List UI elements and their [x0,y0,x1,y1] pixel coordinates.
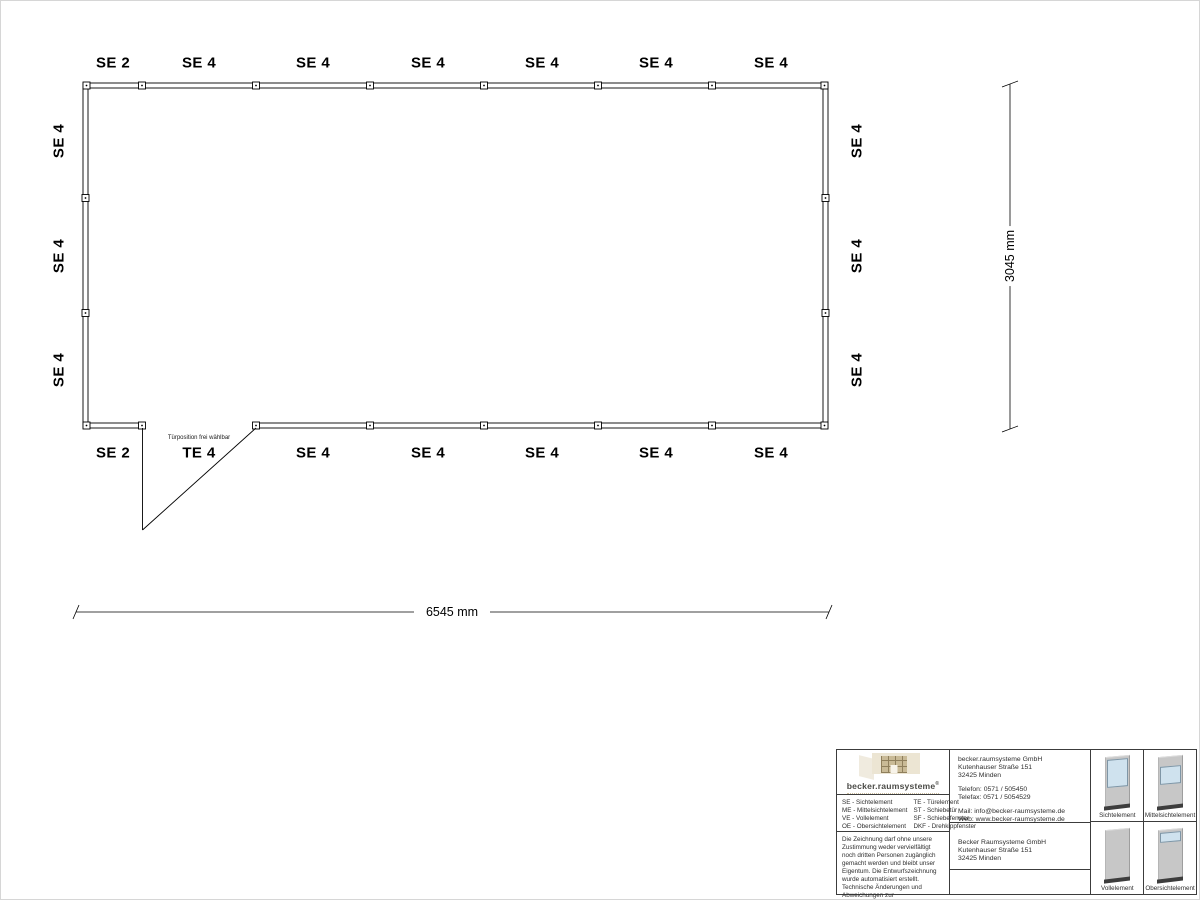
element-label: Mittelsichtelement [1144,812,1196,819]
wall-segment-label-right-1: SE 4 [849,124,866,158]
company-street: Kutenhauser Straße 151 [958,764,1090,772]
company-mail: Mail: info@becker-raumsysteme.de [958,808,1090,816]
height-dimension-value: 3045 mm [1003,226,1017,286]
legend-entry: SE - Sichtelement [842,799,907,807]
glass-pane [1160,831,1181,843]
element-sample-vollelement: Vollelement [1091,822,1143,894]
logo-facade-door [891,765,898,773]
element-sample-obersichtelement: Obersichtelement [1144,822,1196,894]
panel-base [1157,876,1183,883]
disclaimer-text: Die Zeichnung darf ohne unsere Zustimmun… [842,836,944,900]
panel-base [1157,803,1183,810]
brand-logo-illustration [857,752,929,780]
logo-facade-grid [881,756,907,773]
legend-entry: VE - Vollelement [842,815,907,823]
wall-segment-label-bottom-4: SE 4 [411,445,445,462]
wall-segment-label-top-5: SE 4 [525,55,559,72]
wall-segment-label-left-2: SE 4 [51,239,68,273]
wall-segment-label-top-1: SE 2 [96,55,130,72]
element-sample-mittelsichtelement: Mittelsichtelement [1144,750,1196,822]
wall-segment-label-bottom-1: SE 2 [96,445,130,462]
glass-pane [1160,765,1181,785]
panel-graphic-obersichtelement [1158,827,1183,880]
registered-mark: ® [935,781,939,787]
brand-logo: becker.raumsysteme® [837,750,949,795]
wall-segment-label-top-3: SE 4 [296,55,330,72]
door-swing [143,428,257,530]
wall-post-dots [85,85,827,427]
wall-segment-label-left-1: SE 4 [51,124,68,158]
legend-column-1: SE - Sichtelement ME - Mittelsichtelemen… [842,799,907,831]
copyright-disclaimer: Die Zeichnung darf ohne unsere Zustimmun… [837,832,949,900]
company-fax: Telefax: 0571 / 5054529 [958,794,1090,802]
company-name: becker.raumsysteme GmbH [958,756,1090,764]
company-contact: becker.raumsysteme GmbH Kutenhauser Stra… [950,750,1090,823]
panel-graphic-vollelement [1105,827,1130,880]
wall-segment-label-top-2: SE 4 [182,55,216,72]
wall-segment-label-bottom-3: SE 4 [296,445,330,462]
glass-pane [1107,758,1128,788]
wall-segment-label-top-4: SE 4 [411,55,445,72]
wall-segment-label-right-3: SE 4 [849,353,866,387]
title-block: becker.raumsysteme® SE - Sichtelement ME… [836,749,1197,895]
logo-dotted-rule [847,793,939,794]
panel-base [1104,803,1130,810]
brand-name: becker.raumsysteme® [847,781,940,791]
wall-segment-label-top-6: SE 4 [639,55,673,72]
element-label: Obersichtelement [1144,885,1196,892]
panel-graphic-mittelsichtelement [1158,755,1183,808]
legend-entry: OE - Obersichtelement [842,823,907,831]
title-block-middle-column: becker.raumsysteme GmbH Kutenhauser Stra… [950,750,1091,894]
element-legend: SE - Sichtelement ME - Mittelsichtelemen… [837,795,949,832]
element-sample-sichtelement: Sichtelement [1091,750,1143,822]
title-block-elements-column-2: Mittelsichtelement Obersichtelement [1144,750,1196,894]
legend-entry: ME - Mittelsichtelement [842,807,907,815]
brand-name-text: becker.raumsysteme [847,781,936,791]
width-dimension-value: 6545 mm [422,605,482,619]
company-phone: Telefon: 0571 / 505450 [958,786,1090,794]
company-city: 32425 Minden [958,772,1090,780]
door-position-note: Türposition frei wählbar [168,435,230,441]
wall-segment-label-top-7: SE 4 [754,55,788,72]
element-label: Vollelement [1091,885,1143,892]
walls [83,83,828,428]
wall-segment-label-bottom-6: SE 4 [639,445,673,462]
title-block-elements-column-1: Sichtelement Vollelement [1091,750,1144,894]
panel-graphic-sichtelement [1105,755,1130,808]
wall-segment-label-bottom-2: TE 4 [182,445,215,462]
address-city: 32425 Minden [958,855,1090,863]
title-block-left-column: becker.raumsysteme® SE - Sichtelement ME… [837,750,950,894]
empty-cell [950,870,1090,894]
wall-segment-label-left-3: SE 4 [51,353,68,387]
panel-base [1104,876,1130,883]
wall-segment-label-bottom-5: SE 4 [525,445,559,462]
wall-segment-label-right-2: SE 4 [849,239,866,273]
address-street: Kutenhauser Straße 151 [958,847,1090,855]
wall-segment-label-bottom-7: SE 4 [754,445,788,462]
drawing-page: SE 2 SE 4 SE 4 SE 4 SE 4 SE 4 SE 4 SE 2 … [0,0,1200,900]
address-company: Becker Raumsysteme GmbH [958,839,1090,847]
element-label: Sichtelement [1091,812,1143,819]
customer-address: Becker Raumsysteme GmbH Kutenhauser Stra… [950,823,1090,870]
wall-posts [82,82,829,429]
